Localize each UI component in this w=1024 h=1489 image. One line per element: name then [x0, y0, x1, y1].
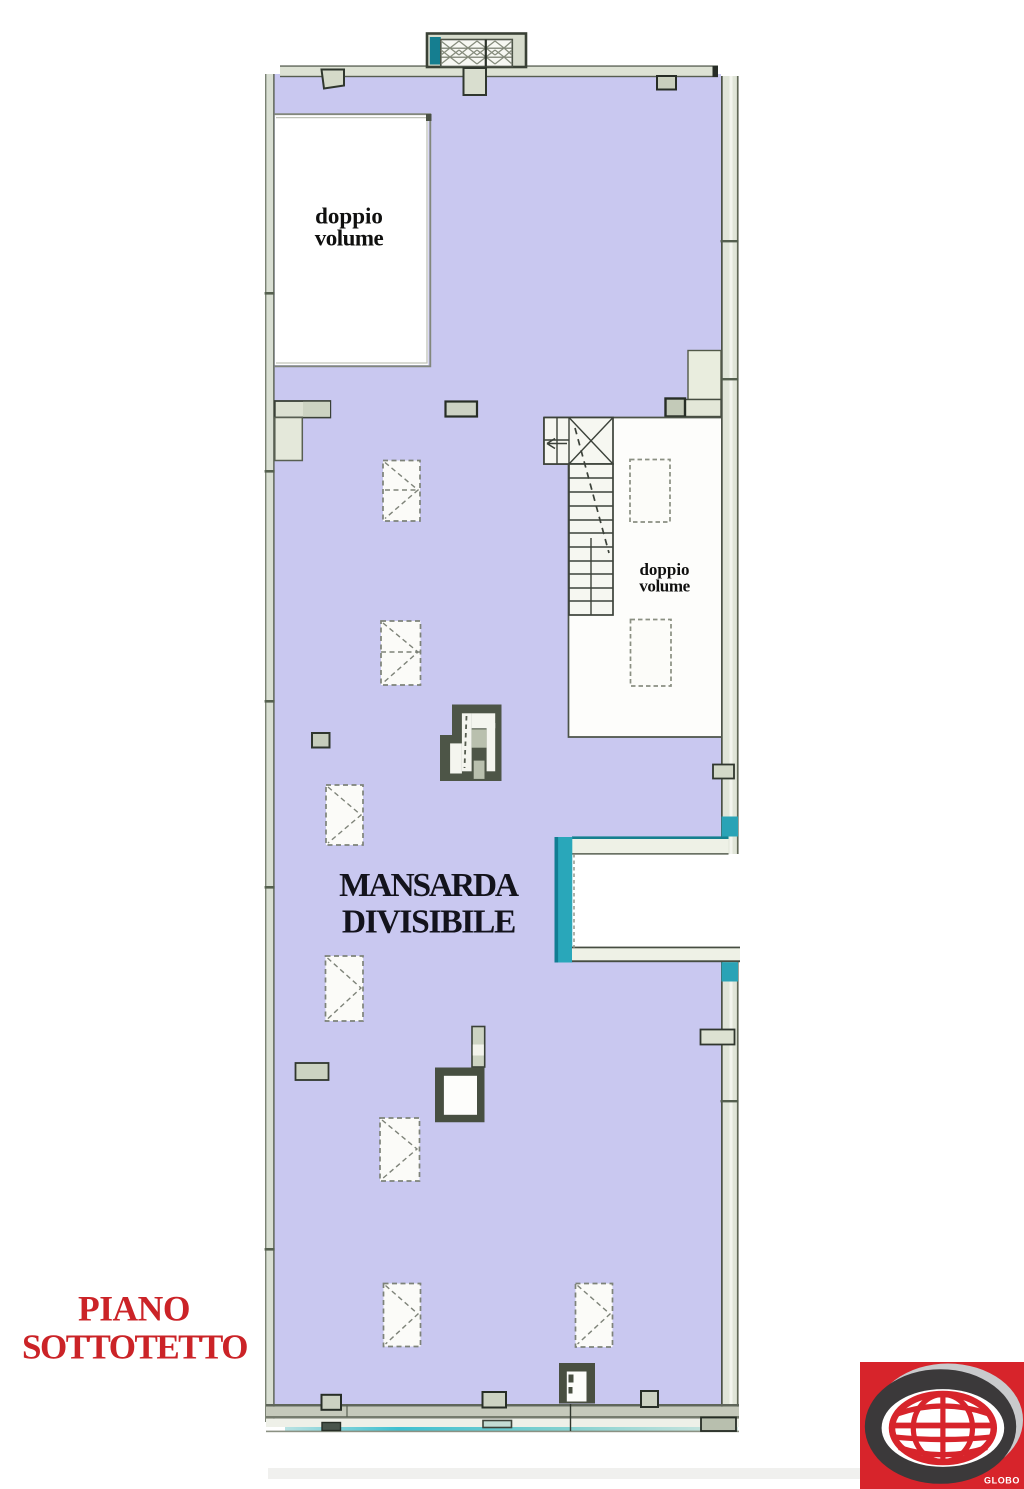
svg-text:MANSARDA: MANSARDA: [339, 867, 519, 904]
svg-text:DIVISIBILE: DIVISIBILE: [342, 904, 515, 941]
svg-text:SOTTOTETTO: SOTTOTETTO: [22, 1328, 247, 1367]
svg-text:volume: volume: [639, 577, 690, 596]
svg-text:volume: volume: [315, 226, 384, 251]
svg-text:GLOBO: GLOBO: [984, 1476, 1020, 1486]
svg-text:PIANO: PIANO: [78, 1289, 190, 1329]
